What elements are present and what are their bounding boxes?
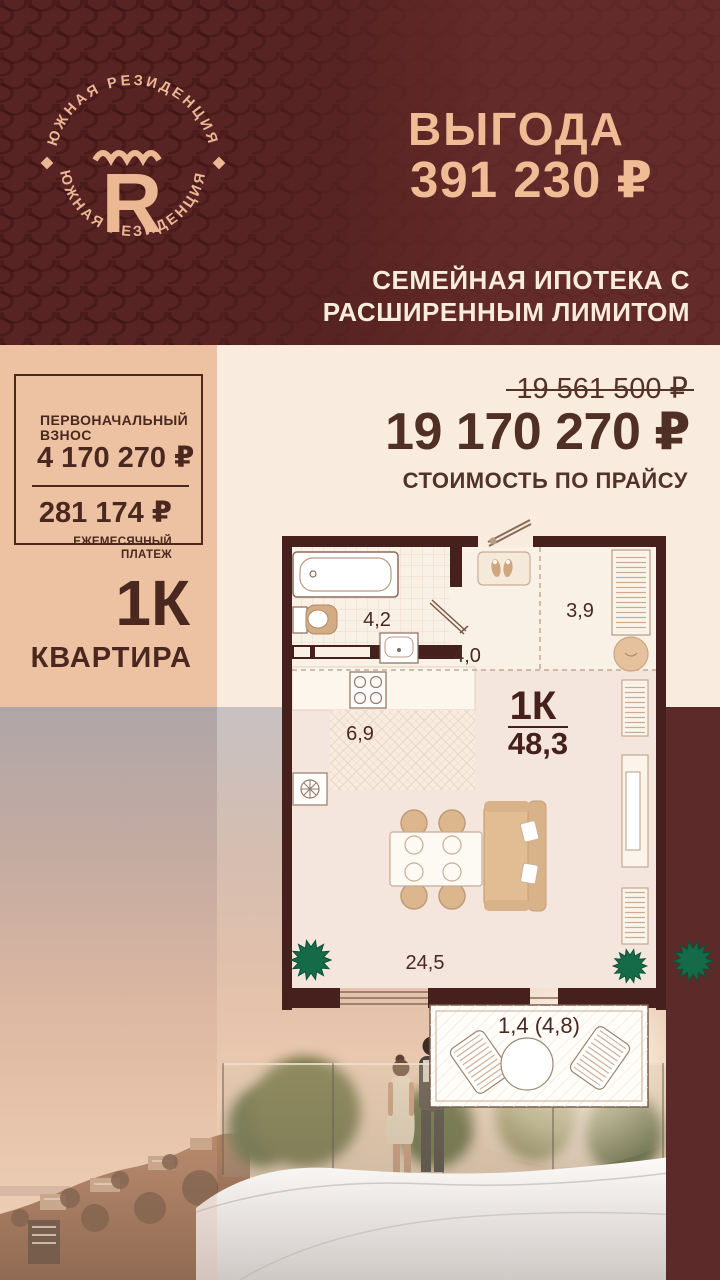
- down-payment-label: ПЕРВОНАЧАЛЬНЫЙ ВЗНОС: [40, 413, 188, 443]
- apartment-kind: КВАРТИРА: [31, 642, 192, 675]
- new-price: 19 170 270 ₽: [385, 402, 690, 462]
- kitchen-sink-icon: [293, 773, 327, 805]
- shoe-mat-icon: [478, 552, 530, 585]
- down-payment-value: 4 170 270 ₽: [37, 440, 194, 475]
- wardrobe-icon: [612, 550, 650, 635]
- photo-haze-overlay: [0, 707, 217, 1280]
- diamond-right-icon: [213, 157, 226, 170]
- price-caption: СТОИМОСТЬ ПО ПРАЙСУ: [403, 468, 688, 494]
- payment-box: ПЕРВОНАЧАЛЬНЫЙ ВЗНОС 4 170 270 ₽ 281 174…: [14, 374, 203, 545]
- logo-monogram: R: [102, 156, 163, 250]
- stove-icon: [350, 672, 386, 708]
- kitchen-area-label: 6,9: [346, 723, 374, 745]
- balcony-table-icon: [501, 1038, 553, 1090]
- floor-plan: 4,2 4,0 3,9 6,9 24,5 1,4 (4,8) 1К 48,3: [280, 500, 666, 1112]
- diamond-left-icon: [41, 157, 54, 170]
- mortgage-line1: СЕМЕЙНАЯ ИПОТЕКА С: [200, 264, 690, 296]
- divider: [32, 485, 189, 487]
- logo-arc-top: ЮЖНАЯ РЕЗИДЕНЦИЯ: [45, 73, 221, 148]
- benefit-label: ВЫГОДА: [408, 102, 625, 156]
- apartment-type: 1К: [115, 573, 190, 633]
- payment-panel: ПЕРВОНАЧАЛЬНЫЙ ВЗНОС 4 170 270 ₽ 281 174…: [0, 345, 217, 707]
- bathroom-area-label: 4,2: [363, 609, 391, 631]
- tv-unit-icon: [622, 680, 648, 944]
- entry-area-label: 3,9: [566, 600, 594, 622]
- brand-logo: ЮЖНАЯ РЕЗИДЕНЦИЯ ЮЖНАЯ РЕЗИДЕНЦИЯ R: [35, 65, 231, 261]
- old-price: 19 561 500 ₽: [516, 371, 688, 406]
- living-area-label: 24,5: [406, 952, 445, 974]
- toilet-icon: [293, 605, 337, 634]
- mortgage-line2: РАСШИРЕННЫМ ЛИМИТОМ: [200, 296, 690, 328]
- monthly-payment-value: 281 174 ₽: [39, 495, 172, 530]
- pouf-icon: [614, 637, 648, 671]
- right-maroon-column: [666, 707, 720, 1280]
- entrance-door-icon: [488, 520, 531, 546]
- monthly-payment-label: ЕЖЕМЕСЯЧНЫЙ ПЛАТЕЖ: [73, 536, 172, 561]
- mortgage-program: СЕМЕЙНАЯ ИПОТЕКА С РАСШИРЕННЫМ ЛИМИТОМ: [200, 264, 690, 328]
- bathroom-sink-icon: [380, 633, 418, 663]
- sofa-icon: [484, 801, 546, 911]
- bathtub-icon: [293, 552, 398, 597]
- balcony-area-label: 1,4 (4,8): [498, 1013, 580, 1038]
- benefit-amount: 391 230 ₽: [410, 150, 653, 210]
- plant-icon: [670, 938, 716, 984]
- hall-area-label: 4,0: [453, 645, 481, 667]
- plan-total-area-label: 48,3: [508, 726, 568, 761]
- plan-type-label: 1К: [510, 684, 557, 728]
- promo-poster: ЮЖНАЯ РЕЗИДЕНЦИЯ ЮЖНАЯ РЕЗИДЕНЦИЯ R ВЫГО…: [0, 0, 720, 1280]
